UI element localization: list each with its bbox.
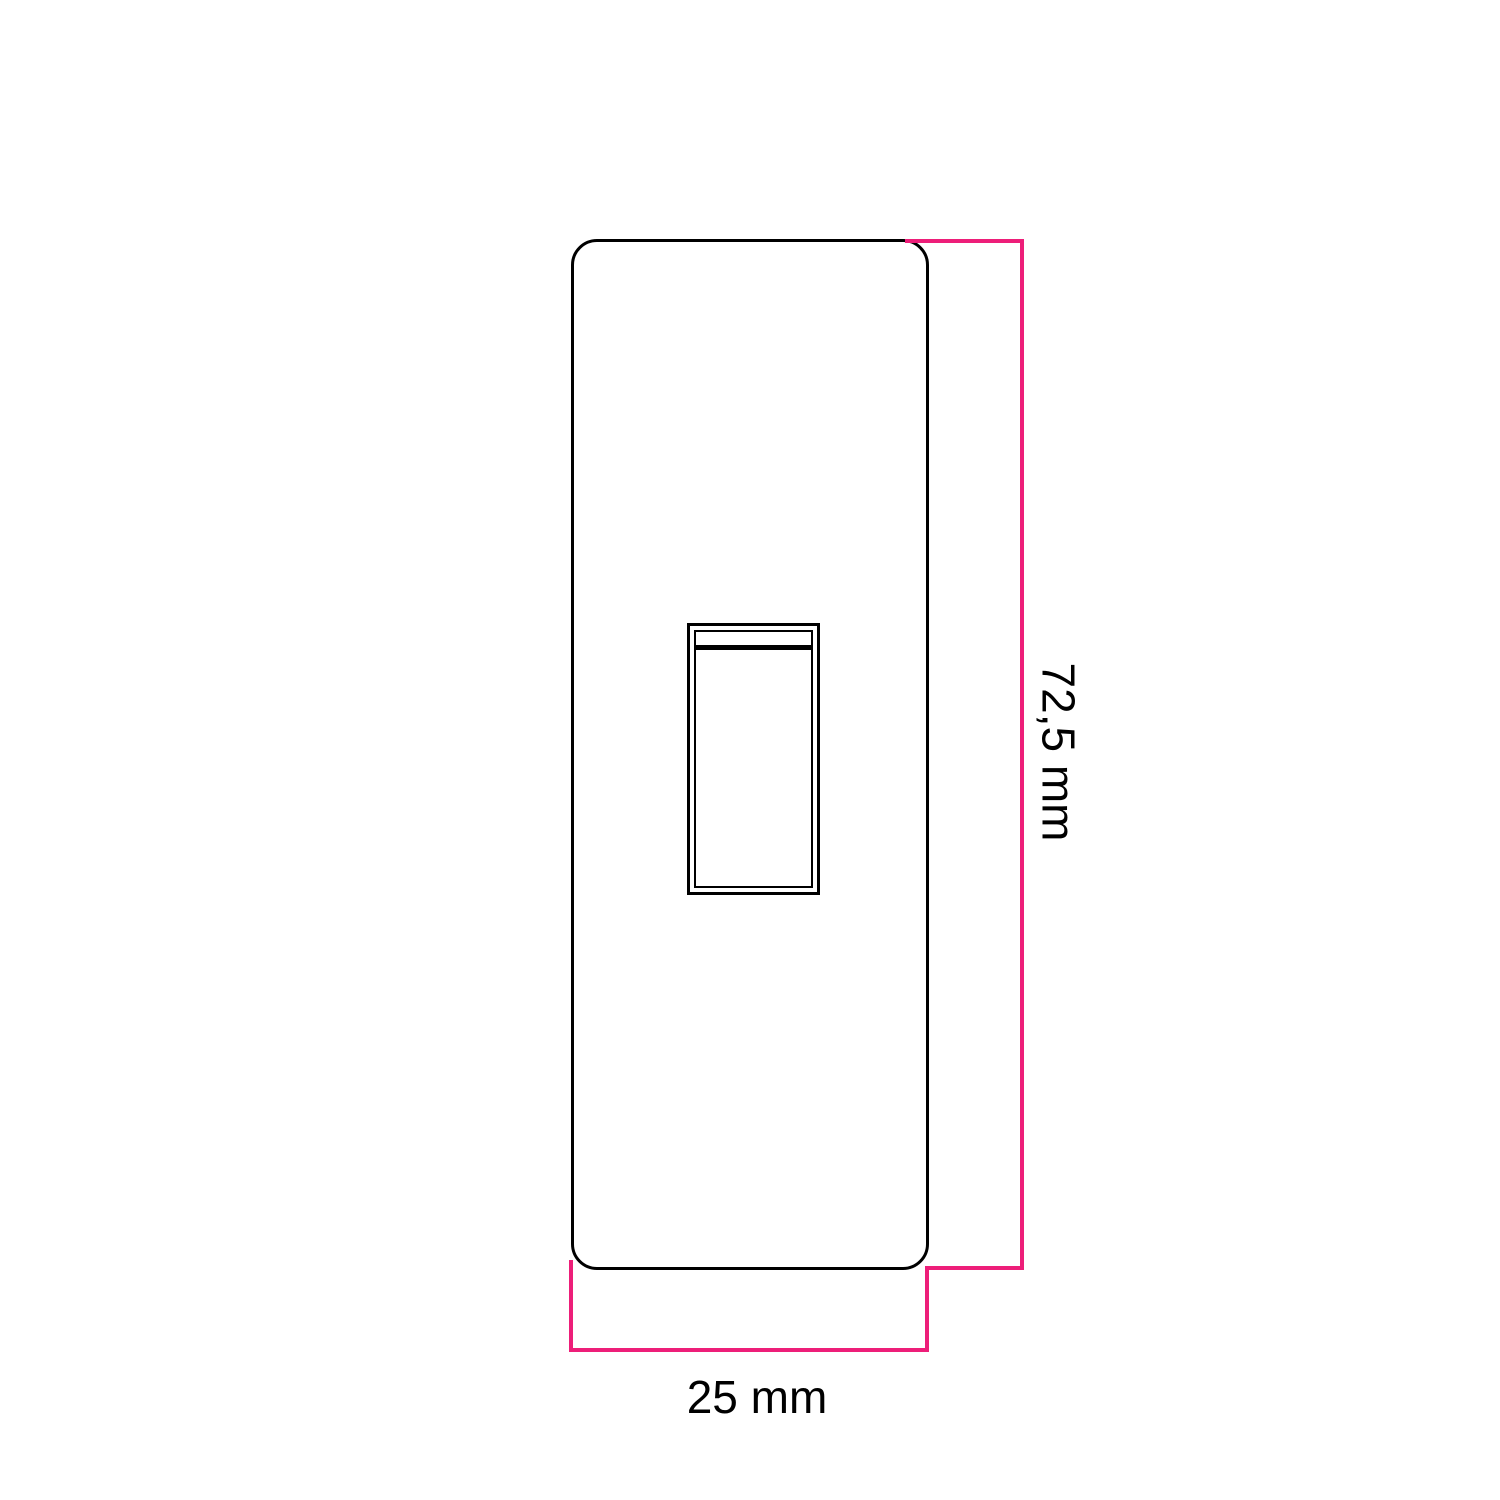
dimension-drawing: 72,5 mm 25 mm — [0, 0, 1500, 1500]
rocker-switch-top-edge-line — [695, 645, 812, 650]
height-extension-line-top — [905, 239, 1024, 243]
width-dimension-label: 25 mm — [687, 1372, 828, 1423]
height-dimension-label: 72,5 mm — [1033, 663, 1084, 842]
height-extension-line-bottom — [929, 1266, 1024, 1270]
height-dimension-line — [1020, 239, 1024, 1270]
rocker-switch-inner-frame — [694, 630, 813, 888]
width-extension-line-left — [569, 1260, 573, 1352]
width-dimension-line — [569, 1348, 929, 1352]
width-extension-line-right — [925, 1266, 929, 1352]
